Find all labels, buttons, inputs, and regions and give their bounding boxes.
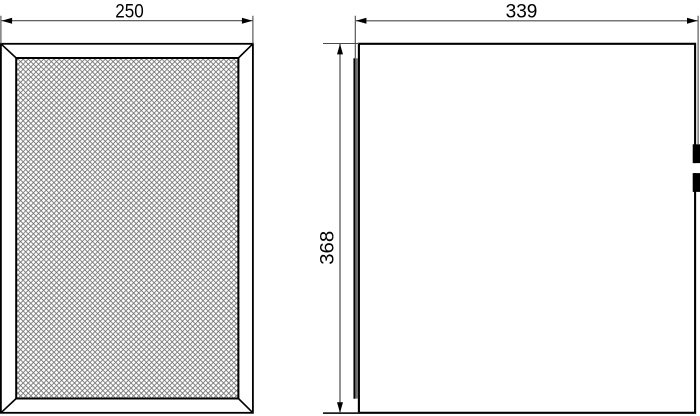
- svg-text:250: 250: [115, 1, 144, 23]
- svg-text:368: 368: [317, 231, 339, 265]
- svg-text:339: 339: [506, 1, 538, 23]
